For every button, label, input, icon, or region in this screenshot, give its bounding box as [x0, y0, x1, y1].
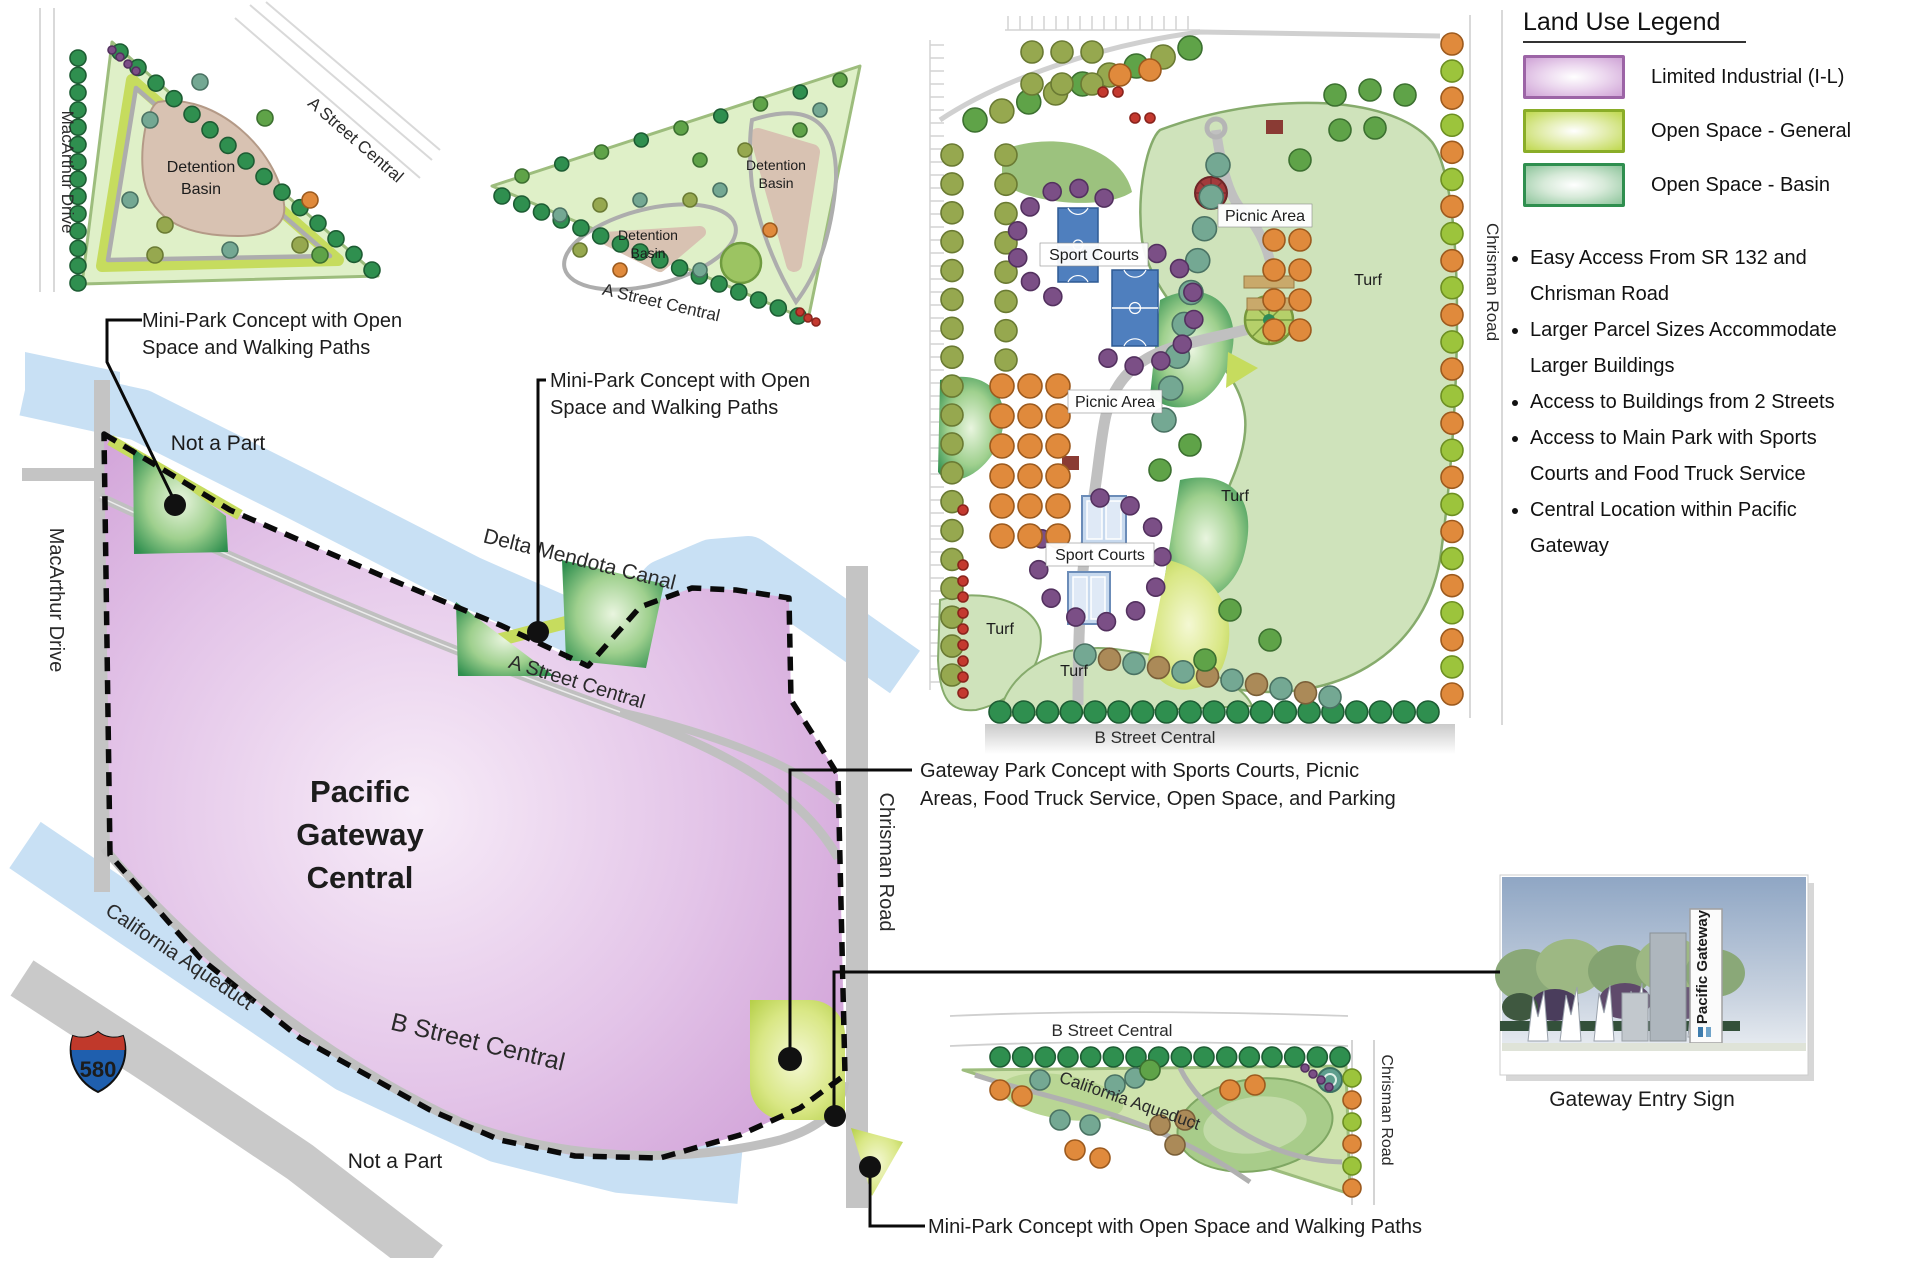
map-title-line2: Gateway — [296, 817, 424, 852]
map-title-line3: Central — [307, 860, 414, 895]
inset-mini-park-3: B Street Central California Aqueduct Chr… — [950, 1012, 1395, 1205]
inset2-basin2-line2: Basin — [630, 245, 665, 261]
inset2-basin1-line1: Detention — [746, 157, 806, 173]
legend-title: Land Use Legend — [1523, 8, 1746, 43]
park-chrisman-road-label: Chrisman Road — [1483, 223, 1502, 341]
legend-item-open-space-general: Open Space - General — [1523, 111, 1920, 151]
entry-sign-text: Pacific Gateway — [1694, 909, 1711, 1024]
land-use-plan-page: Pacific Gateway Central Not a Part Not a… — [0, 0, 1920, 1258]
inset-mini-park-1: Detention Basin MacArthur Drive A Street… — [40, 2, 440, 292]
park-b-street-label: B Street Central — [1095, 728, 1216, 747]
bullet-item: Easy Access From SR 132 and Chrisman Roa… — [1530, 240, 1866, 312]
picnic-area-1-label: Picnic Area — [1225, 208, 1305, 225]
feature-bullet-list: Easy Access From SR 132 and Chrisman Roa… — [1504, 240, 1864, 564]
bullet-item: Larger Parcel Sizes Accommodate Larger B… — [1530, 312, 1866, 384]
park-chrisman-road-lines — [1470, 10, 1502, 725]
inset1-detention-basin-line2: Basin — [181, 181, 221, 198]
mini-park-annotation-2-line1: Mini-Park Concept with Open — [550, 370, 810, 392]
chrisman-road-band — [846, 566, 868, 1208]
gateway-entry-sign-image: Pacific Gateway — [1495, 875, 1814, 1081]
inset2-basin1-line2: Basin — [758, 175, 793, 191]
gateway-park-annotation-line1: Gateway Park Concept with Sports Courts,… — [920, 760, 1359, 782]
legend-item-open-space-basin: Open Space - Basin — [1523, 165, 1920, 205]
mini-park-annotation-1-line2: Space and Walking Paths — [142, 337, 370, 359]
entry-sign-panel: Pacific Gateway — [1690, 909, 1722, 1043]
inset1-a-street-label: A Street Central — [304, 93, 407, 186]
inset2-a-street-label: A Street Central — [601, 280, 722, 326]
legend-item-limited-industrial: Limited Industrial (I-L) — [1523, 57, 1920, 97]
turf-label-4: Turf — [1060, 663, 1088, 680]
picnic-area-2-label: Picnic Area — [1075, 394, 1155, 411]
inset-mini-park-2: Detention Basin Detention Basin A Street… — [492, 66, 860, 326]
turf-label-1: Turf — [1354, 272, 1382, 289]
inset2-basin2-line1: Detention — [618, 227, 678, 243]
land-use-legend: Land Use Legend Limited Industrial (I-L)… — [1523, 8, 1920, 205]
mini-park-annotation-3: Mini-Park Concept with Open Space and Wa… — [928, 1216, 1422, 1238]
sport-courts-1-label: Sport Courts — [1049, 247, 1139, 264]
gateway-park-plan: Sport Courts Picnic Area Picnic Area Spo… — [930, 10, 1502, 754]
bullet-item: Access to Main Park with Sports Courts a… — [1530, 420, 1866, 492]
macarthur-drive-label: MacArthur Drive — [45, 528, 67, 672]
i580-shield: 580 — [71, 1032, 126, 1092]
not-a-part-bottom-label: Not a Part — [348, 1150, 443, 1173]
not-a-part-top-label: Not a Part — [171, 432, 266, 455]
inset1-detention-basin-line1: Detention — [167, 159, 236, 176]
map-title-line1: Pacific — [310, 774, 410, 809]
bullet-item: Central Location within Pacific Gateway — [1530, 492, 1866, 564]
basketball-court-2 — [1112, 270, 1158, 346]
inset3-chrisman-road-label: Chrisman Road — [1378, 1054, 1395, 1165]
legend-swatch-open-space-general — [1523, 109, 1625, 153]
mini-park-annotation-1-line1: Mini-Park Concept with Open — [142, 310, 402, 332]
chrisman-road-label: Chrisman Road — [875, 793, 897, 932]
bullet-item: Access to Buildings from 2 Streets — [1530, 384, 1866, 420]
gateway-park-annotation-line2: Areas, Food Truck Service, Open Space, a… — [920, 788, 1396, 810]
entry-sign-caption: Gateway Entry Sign — [1549, 1088, 1735, 1111]
turf-label-3: Turf — [986, 621, 1014, 638]
i580-shield-number: 580 — [80, 1057, 117, 1082]
mini-park-annotation-2-line2: Space and Walking Paths — [550, 397, 778, 419]
turf-label-2: Turf — [1221, 488, 1249, 505]
legend-swatch-open-space-basin — [1523, 163, 1625, 207]
legend-swatch-limited-industrial — [1523, 55, 1625, 99]
inset3-b-street-label: B Street Central — [1052, 1021, 1173, 1040]
sport-courts-2-label: Sport Courts — [1055, 547, 1145, 564]
inset1-macarthur-label: MacArthur Drive — [58, 111, 77, 234]
